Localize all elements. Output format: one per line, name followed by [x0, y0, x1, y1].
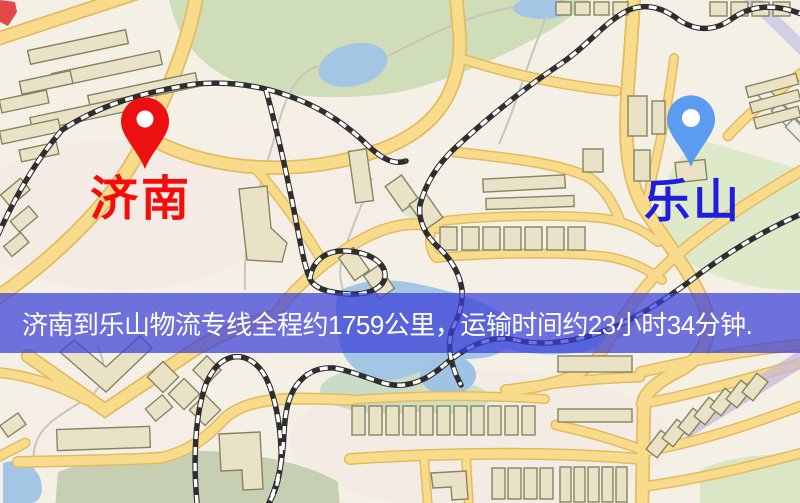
map-screenshot: 济南 乐山 济南到乐山物流专线全程约1759公里，运输时间约23小时34分钟.	[0, 0, 800, 503]
destination-city-label: 乐山	[644, 179, 742, 225]
route-info-banner: 济南到乐山物流专线全程约1759公里，运输时间约23小时34分钟.	[0, 293, 800, 353]
origin-city-label: 济南	[90, 176, 192, 224]
route-info-text: 济南到乐山物流专线全程约1759公里，运输时间约23小时34分钟.	[22, 305, 752, 342]
map-image[interactable]	[0, 0, 800, 503]
